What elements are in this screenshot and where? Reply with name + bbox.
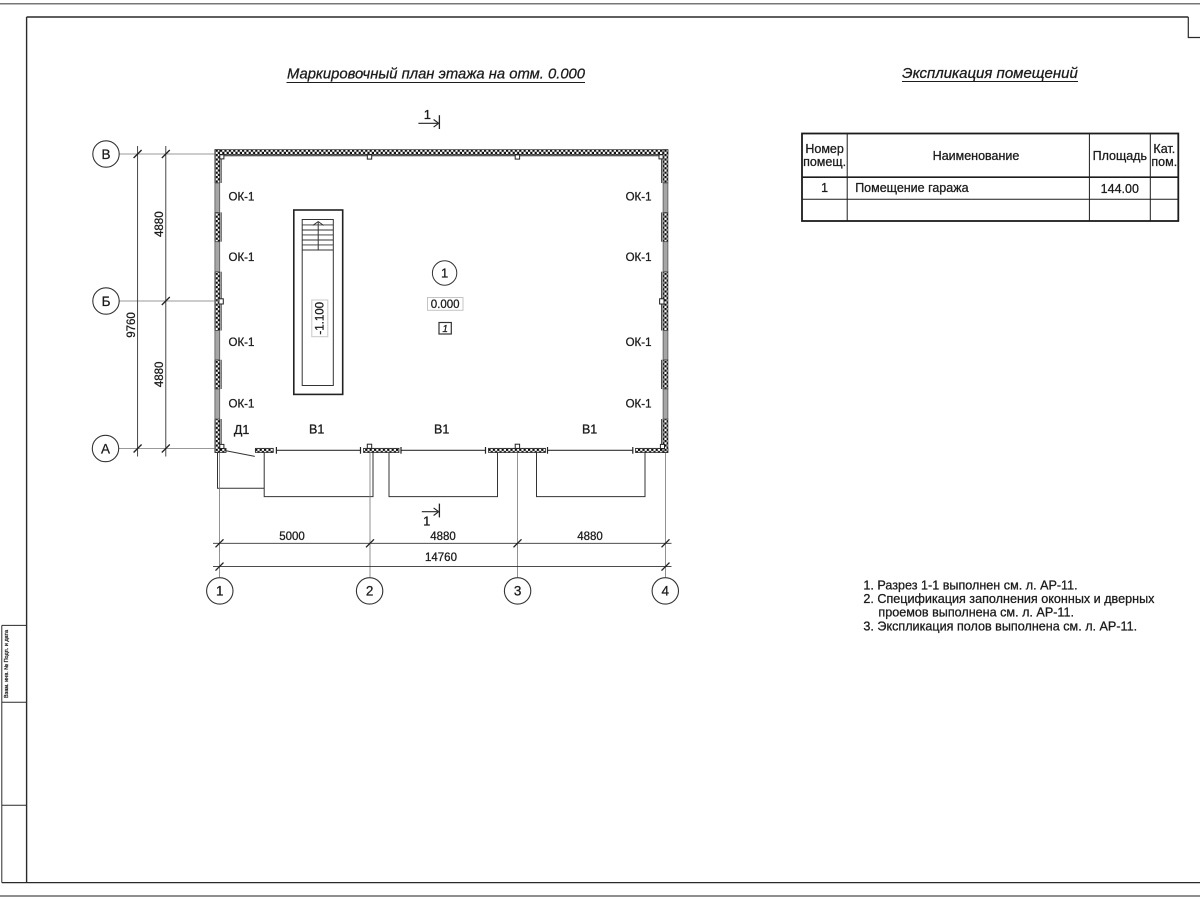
svg-text:14760: 14760 [425, 552, 457, 564]
svg-text:4880: 4880 [154, 211, 166, 237]
svg-text:3. Экспликация полов выполнена: 3. Экспликация полов выполнена см. л. АР… [863, 620, 1137, 634]
svg-text:Д1: Д1 [234, 423, 249, 437]
svg-text:4880: 4880 [430, 531, 456, 543]
svg-text:проемов выполнена см. л. АР-11: проемов выполнена см. л. АР-11. [878, 606, 1074, 620]
svg-text:Маркировочный план этажа на от: Маркировочный план этажа на отм. 0.000 [287, 67, 586, 83]
svg-text:1. Разрез 1-1 выполнен см. л.: 1. Разрез 1-1 выполнен см. л. АР-11. [863, 579, 1077, 593]
svg-text:ОК-1: ОК-1 [626, 337, 652, 349]
svg-text:ОК-1: ОК-1 [229, 252, 255, 264]
svg-text:В1: В1 [434, 423, 449, 437]
svg-text:1: 1 [821, 181, 828, 195]
svg-text:ОК-1: ОК-1 [626, 192, 652, 204]
svg-text:пом.: пом. [1151, 155, 1177, 169]
svg-text:144.00: 144.00 [1101, 182, 1139, 196]
svg-text:4: 4 [662, 584, 670, 599]
svg-text:2: 2 [366, 584, 374, 599]
svg-text:1: 1 [216, 584, 224, 599]
svg-text:9760: 9760 [126, 312, 138, 338]
svg-text:4880: 4880 [154, 362, 166, 388]
svg-text:Взам. инв. № Подп. и дата: Взам. инв. № Подп. и дата [4, 629, 10, 698]
svg-text:1: 1 [441, 266, 448, 281]
svg-text:Помещение гаража: Помещение гаража [855, 181, 968, 195]
svg-text:4880: 4880 [577, 531, 603, 543]
svg-text:3: 3 [514, 584, 522, 599]
svg-text:ОК-1: ОК-1 [229, 192, 255, 204]
svg-text:5000: 5000 [279, 531, 305, 543]
svg-text:1: 1 [424, 107, 431, 122]
svg-text:А: А [101, 441, 110, 456]
svg-text:0.000: 0.000 [431, 299, 460, 311]
svg-text:Площадь: Площадь [1093, 149, 1147, 163]
svg-text:Наименование: Наименование [933, 149, 1020, 163]
svg-text:Б: Б [102, 294, 111, 309]
svg-text:1: 1 [442, 324, 448, 335]
svg-text:ОК-1: ОК-1 [229, 337, 255, 349]
svg-text:Номер: Номер [805, 142, 844, 156]
svg-text:1: 1 [423, 514, 430, 529]
svg-text:Кат.: Кат. [1153, 142, 1175, 156]
svg-text:помещ.: помещ. [803, 155, 846, 169]
svg-text:2. Спецификация заполнения око: 2. Спецификация заполнения оконных и две… [863, 592, 1155, 606]
svg-text:В: В [101, 147, 110, 162]
svg-text:-1.100: -1.100 [315, 302, 327, 335]
svg-text:В1: В1 [582, 423, 597, 437]
svg-text:Экспликация помещений: Экспликация помещений [902, 65, 1078, 82]
svg-text:ОК-1: ОК-1 [626, 398, 652, 410]
svg-text:В1: В1 [309, 423, 324, 437]
svg-text:ОК-1: ОК-1 [229, 398, 255, 410]
svg-text:ОК-1: ОК-1 [626, 252, 652, 264]
